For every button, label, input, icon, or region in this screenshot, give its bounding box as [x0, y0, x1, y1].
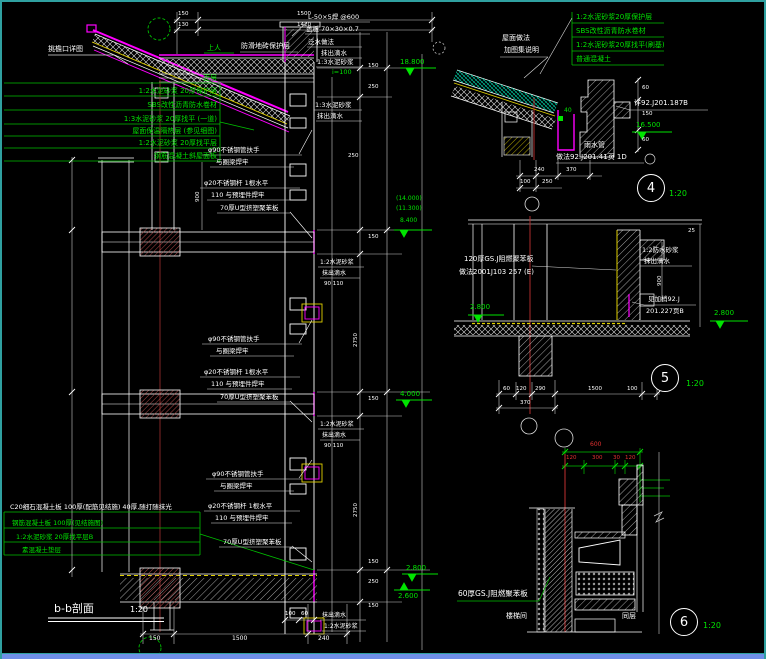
dim-label: 1500 [297, 12, 311, 18]
dim-label: 900 [658, 276, 664, 287]
dim-label: 370 [566, 168, 577, 174]
walkable-note: 上人 [207, 45, 221, 52]
railing-note: 70厚U型挤塑聚苯板 [220, 205, 279, 212]
d6-label: 楼梯间 [506, 613, 527, 620]
detail-number-bubble: 6 [670, 608, 698, 636]
section-scale: 1:20 [130, 606, 148, 614]
parapet-note: 泛水做法 [308, 39, 334, 46]
railing-note: φ20不锈钢杆 1根水平 [204, 180, 268, 187]
parapet-note: 盖板 70×30×0.7 [306, 26, 359, 33]
d5-board-note: 120厚GS.J阻燃聚苯板 [464, 256, 534, 263]
d5-right-note: 抹出滴水 [644, 258, 670, 265]
elevation-label: 2.600 [398, 593, 418, 600]
railing-note: 110 与预埋件焊牢 [211, 192, 264, 199]
dim-label: 25 [688, 229, 695, 235]
d6-board-note: 60厚GS.J阻燃聚苯板 [458, 590, 528, 598]
elevation-label: (14.000) [396, 196, 422, 202]
railing-note: φ90不锈钢管扶手 [208, 147, 260, 154]
dim-label: 600 [590, 442, 601, 448]
dim-label: 2750 [354, 333, 360, 347]
eave-note: 挑檐口详图 [48, 46, 83, 53]
dim-label: 100 [627, 387, 638, 393]
dim-label: 150 [149, 636, 160, 642]
roof-layer-note: 1:2水泥砂浆 20厚找平层 [4, 140, 217, 147]
railing-note: 110 与预埋件焊牢 [211, 381, 264, 388]
floor-layer-note: C20细石混凝土板 100厚(配筋见结施) 40厚,随打随抹光 [10, 504, 172, 511]
d4-side-note: 加图集说明 [504, 47, 539, 54]
dim-label: 150 [368, 560, 379, 566]
railing-note: φ20不锈钢杆 1根水平 [208, 503, 272, 510]
roof-layer-note: SBS改性沥青防水卷材 [4, 102, 217, 109]
dim-label: 150 [368, 397, 379, 403]
window-bottom-edge [2, 653, 764, 659]
railing-note: 70厚U型挤塑聚苯板 [223, 539, 282, 546]
elevation-label: 2.800 [406, 565, 426, 572]
roof-layer-note: 面层 [4, 75, 217, 82]
detail-number: 5 [661, 371, 669, 386]
dim-label: 120 [625, 456, 636, 462]
roof-layer-note: 屋面保温隔热层 (参见细图) [4, 128, 217, 135]
dim-label: 150 [642, 112, 653, 118]
dim-label: 60 [642, 86, 649, 92]
dim-label: 300 [592, 456, 603, 462]
parapet-note: L-50×5焊 @600 [308, 14, 359, 21]
dim-label: 30 [613, 456, 620, 462]
dim-label: 100 [520, 180, 531, 186]
band-note: 1:2水泥砂浆 [320, 422, 354, 428]
floor-layer-note: 素混凝土垫层 [22, 547, 61, 554]
band-note: 1:2水泥砂浆 [320, 260, 354, 266]
parapet-note: 1:3水泥砂浆 [317, 59, 353, 66]
floor-layer-note: 钢筋混凝土板 100厚(见结施图) [12, 520, 103, 527]
dim-label: 100 [285, 612, 296, 618]
dim-label: 150 [368, 64, 379, 70]
dim-label: 290 [535, 387, 546, 393]
d4-ref-note: 详92.J201.187B [634, 100, 688, 107]
d4-side-note: 屋面做法 [502, 35, 530, 42]
dim-label: 150 [368, 604, 379, 610]
bottom-note: 1:2水泥砂浆 [324, 624, 358, 630]
d5-ref-note: 见加梢92.J [648, 296, 680, 303]
detail-scale: 1:20 [669, 190, 687, 198]
slope-note: i=100 [332, 69, 352, 76]
dim-label: 240 [534, 168, 545, 174]
roof-layer-note: 钢筋混凝土斜屋面板 [4, 153, 217, 160]
d4-elevation: 16.500 [636, 122, 661, 129]
d5-elevation: 2.800 [470, 304, 490, 311]
band-dims: 90 110 [324, 282, 343, 288]
detail-number-bubble: 5 [651, 364, 679, 392]
d5-board-note: 做法2001J103 257 (E) [459, 269, 534, 276]
dim-label: 1500 [232, 636, 247, 642]
d5-elevation: 2.800 [714, 310, 734, 317]
railing-note: 70厚U型挤塑聚苯板 [220, 394, 279, 401]
dim-label: 120 [566, 456, 577, 462]
detail-scale: 1:20 [703, 622, 721, 630]
railing-note: 与圈梁焊牢 [216, 159, 249, 166]
d6-label: 同层 [622, 613, 636, 620]
dim-label: 60 [642, 138, 649, 144]
roof-layer-note: 1:3水泥砂浆 20厚找平 (一道) [4, 116, 217, 123]
d4-pipe-note: 雨水管 [584, 142, 605, 149]
d5-ref-note: 201.227页B [646, 308, 684, 315]
dim-label: 1420 [297, 23, 311, 29]
railing-note: 与圈梁焊牢 [220, 483, 253, 490]
dim-label: 2750 [354, 503, 360, 517]
tile-note: 防滑地砖保护层 [241, 43, 290, 50]
parapet-note: 抹出滴水 [317, 113, 343, 120]
d4-layer-note: SBS改性沥青防水卷材 [576, 28, 646, 35]
dim-label: 150 [178, 12, 189, 18]
dim-label: 250 [368, 85, 379, 91]
elevation-label: 18.800 [400, 59, 425, 66]
dim-label: 120 [516, 387, 527, 393]
bottom-note: 抹出滴水 [322, 613, 346, 619]
dim-label: 250 [368, 580, 379, 586]
d5-right-note: 1:2防水砂浆 [642, 247, 678, 254]
d4-pipe-note: 做法92.J201.41页 1D [556, 154, 627, 161]
railing-note: φ90不锈钢管扶手 [208, 336, 260, 343]
dim-label: 900 [196, 192, 202, 203]
detail-number: 4 [647, 181, 655, 196]
band-dims: 90 110 [324, 444, 343, 450]
railing-note: 与圈梁焊牢 [216, 348, 249, 355]
floor-layer-note: 1:2水泥砂浆 20厚找平层B [16, 534, 93, 541]
band-note: 抹出滴水 [322, 271, 346, 277]
elevation-label: (11.300) [396, 206, 422, 212]
dim-label: 60 [301, 612, 308, 618]
railing-note: 110 与预埋件焊牢 [215, 515, 268, 522]
elevation-label: 8.400 [400, 218, 417, 224]
dim-label: 1500 [588, 387, 602, 393]
dim-label: 370 [520, 401, 531, 407]
section-title: b-b剖面 [54, 603, 94, 614]
elevation-label: 4.000 [400, 391, 420, 398]
parapet-note: 抹出滴水 [321, 50, 347, 57]
detail-number: 6 [680, 615, 688, 630]
roof-layer-note: 1:2水泥砂浆 20厚保护层 [4, 88, 217, 95]
d4-layer-note: 1:2水泥砂浆20厚找平(刷基) [576, 42, 665, 49]
parapet-note: 1:3水泥砂浆 [315, 102, 351, 109]
d4-layer-note: 普通混凝土 [576, 56, 611, 63]
railing-note: φ20不锈钢杆 1根水平 [204, 369, 268, 376]
band-note: 抹出滴水 [322, 433, 346, 439]
dim-label: 240 [318, 636, 329, 642]
d4-layer-note: 1:2水泥砂浆20厚保护层 [576, 14, 652, 21]
railing-note: φ90不锈钢管扶手 [212, 471, 264, 478]
detail-number-bubble: 4 [637, 174, 665, 202]
dim-label: 250 [542, 180, 553, 186]
detail-scale: 1:20 [686, 380, 704, 388]
dim-label: 150 [368, 235, 379, 241]
dim-label: 130 [178, 23, 189, 29]
dim-label: 250 [348, 154, 359, 160]
dim-label: 60 [503, 387, 510, 393]
d4-green-mark: 40 [564, 108, 572, 114]
cad-viewport[interactable]: 面层 1:2水泥砂浆 20厚保护层 SBS改性沥青防水卷材 1:3水泥砂浆 20… [0, 0, 766, 659]
